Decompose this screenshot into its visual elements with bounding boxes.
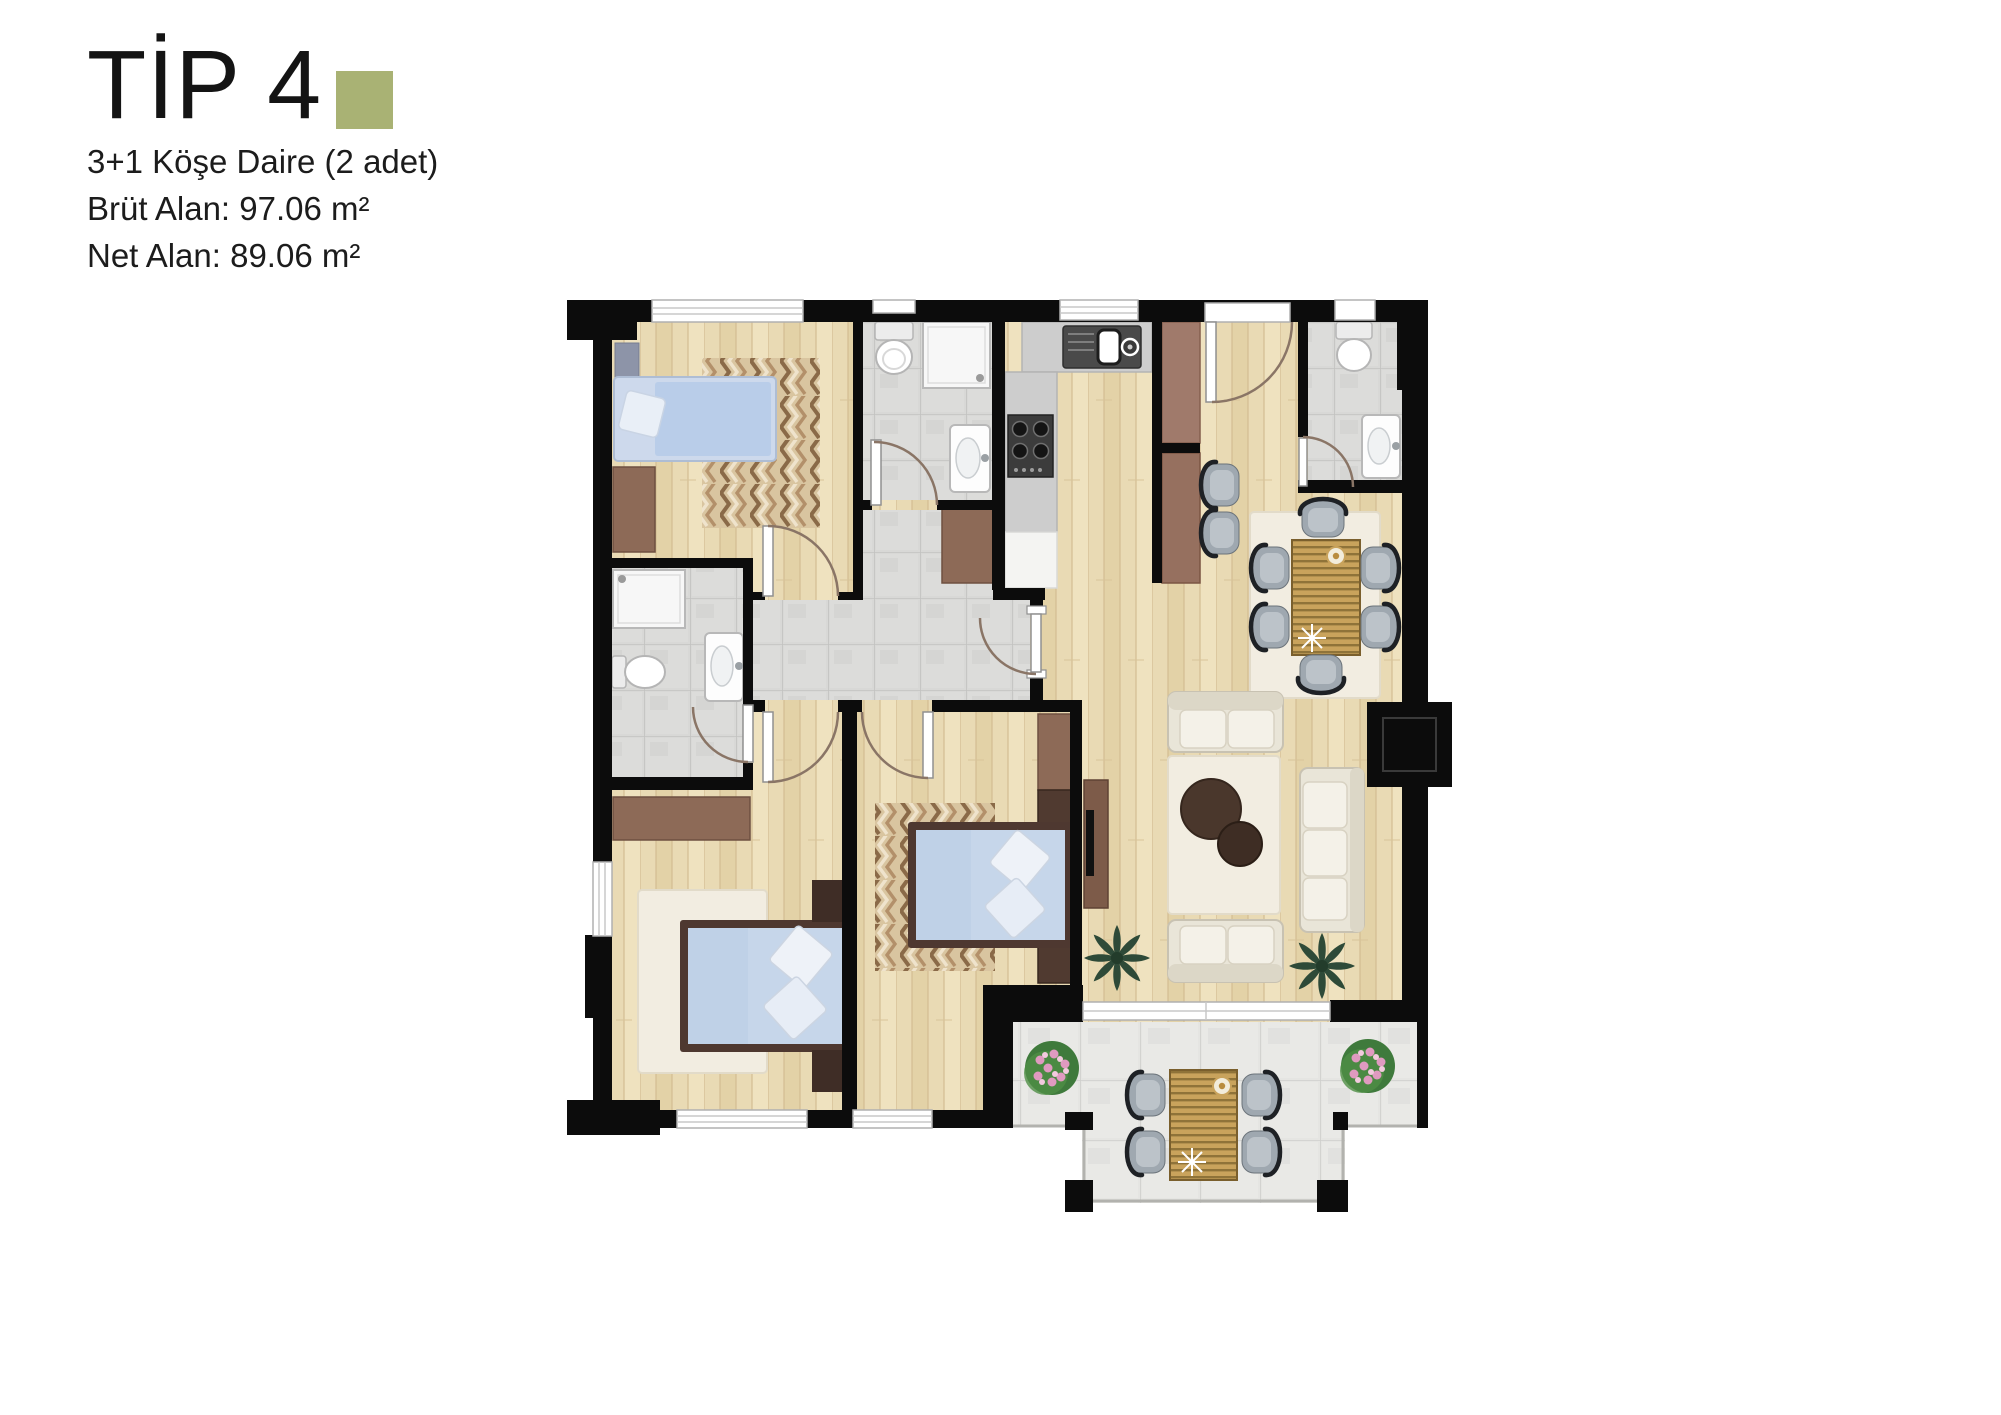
- double-bed: [680, 920, 850, 1052]
- window-small: [1335, 300, 1375, 320]
- toilet: [875, 322, 913, 374]
- coffee-table-small: [1218, 822, 1262, 866]
- balcony-chair: [1242, 1129, 1280, 1175]
- sofa-right: [1300, 768, 1364, 932]
- window: [652, 300, 803, 322]
- net-area-label: Net Alan: 89.06 m²: [87, 237, 438, 274]
- cabinet-white: [1005, 532, 1057, 588]
- gross-area-label: Brüt Alan: 97.06 m²: [87, 190, 438, 227]
- window-small: [873, 300, 915, 313]
- dining-chair: [1251, 604, 1289, 650]
- dining-chair: [1300, 499, 1346, 537]
- wardrobe: [1038, 714, 1072, 790]
- kitchen-sink: [1063, 326, 1141, 368]
- header: TİP 4 3+1 Köşe Daire (2 adet) Brüt Alan:…: [87, 36, 438, 274]
- loveseat-bottom: [1168, 920, 1283, 982]
- sink: [1362, 415, 1400, 478]
- plate-deco: [1213, 1077, 1231, 1095]
- balcony-chair: [1242, 1072, 1280, 1118]
- shaft: [1367, 702, 1452, 787]
- dining-chair: [1251, 545, 1289, 591]
- apartment-type-label: 3+1 Köşe Daire (2 adet): [87, 143, 438, 180]
- double-bed: [908, 822, 1072, 948]
- side-chair: [1201, 510, 1239, 556]
- loveseat-top: [1168, 692, 1283, 752]
- flower-deco: [1298, 624, 1326, 652]
- window: [1060, 300, 1138, 320]
- shower: [613, 570, 685, 628]
- plant: [1084, 925, 1150, 991]
- flower-deco: [1178, 1148, 1206, 1176]
- plate-deco: [1327, 547, 1345, 565]
- dining-chair: [1298, 655, 1344, 693]
- entry-cabinet-lower: [1162, 453, 1200, 583]
- balcony-chair: [1127, 1072, 1165, 1118]
- side-chair: [1201, 462, 1239, 508]
- window: [853, 1110, 932, 1128]
- toilet: [1336, 322, 1372, 371]
- dining-chair: [1361, 545, 1399, 591]
- sink: [705, 633, 743, 701]
- balcony-chair: [1127, 1129, 1165, 1175]
- stove: [1008, 415, 1053, 477]
- single-bed: [614, 377, 776, 461]
- hall-cabinet: [942, 508, 995, 583]
- dresser: [613, 467, 655, 552]
- shower: [923, 322, 990, 388]
- window: [593, 862, 612, 936]
- type-color-swatch: [336, 71, 393, 129]
- entry-cabinet-upper: [1162, 322, 1200, 443]
- plant: [1289, 933, 1355, 999]
- toilet: [612, 656, 665, 688]
- sink: [950, 425, 990, 492]
- balcony-slider: [1083, 1002, 1330, 1020]
- dining-chair: [1361, 604, 1399, 650]
- window: [677, 1110, 807, 1128]
- page-title: TİP 4: [87, 36, 322, 133]
- tv-unit: [1084, 780, 1108, 908]
- wardrobe: [613, 797, 750, 840]
